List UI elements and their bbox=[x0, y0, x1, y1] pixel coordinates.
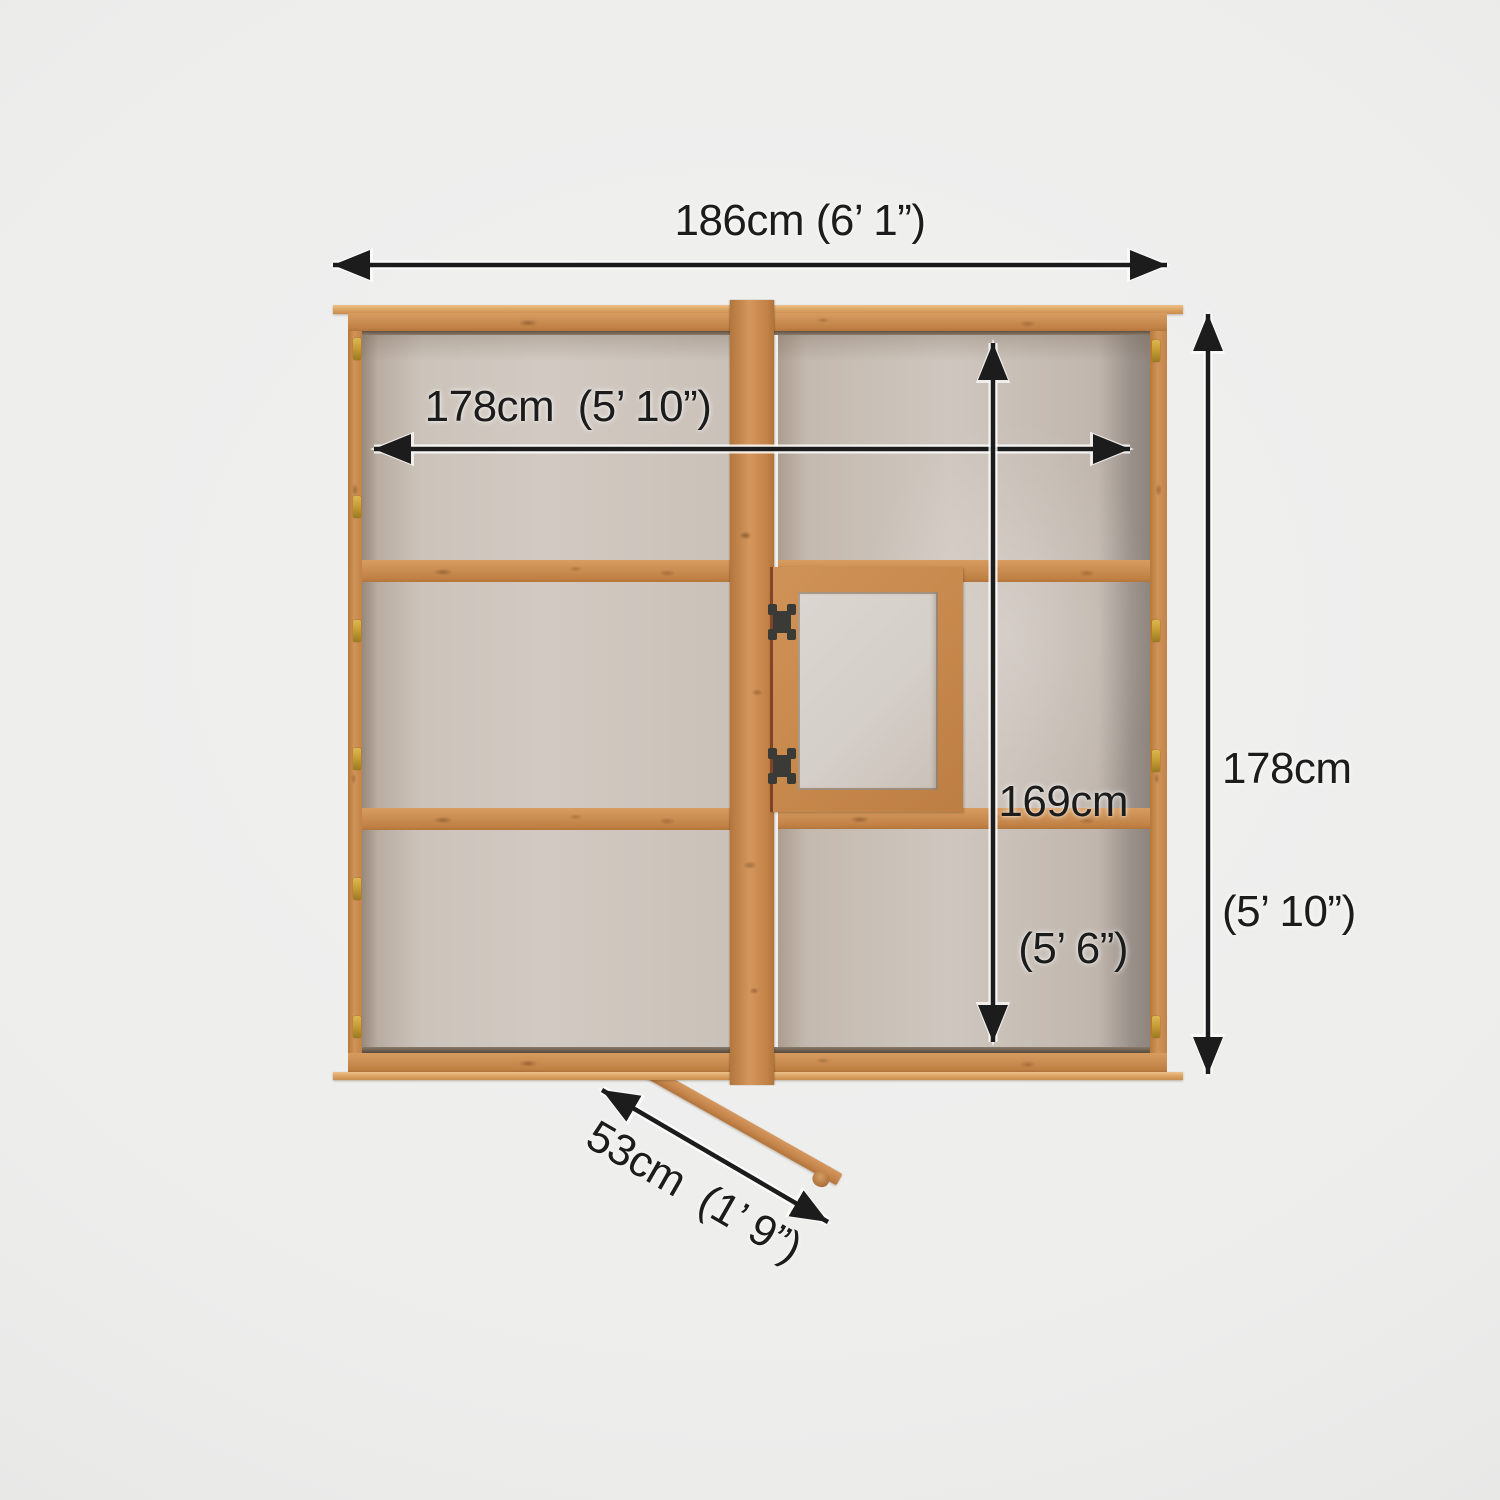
greenhouse-dimension-diagram: { "diagram": { "type": "product-dimensio… bbox=[0, 0, 1500, 1500]
dimension-label-internal-depth: 169cm (5’ 6”) bbox=[998, 678, 1128, 1023]
dimension-label-line: (5’ 6”) bbox=[998, 924, 1128, 973]
dimension-label-line: (5’ 10”) bbox=[1222, 888, 1356, 936]
dimension-label-line: 169cm bbox=[998, 777, 1128, 826]
dimension-label-line: 178cm bbox=[1222, 745, 1356, 793]
dimension-label-overall-depth: 178cm (5’ 10”) bbox=[1222, 650, 1356, 983]
dimension-label-overall-width: 186cm (6’ 1”) bbox=[674, 197, 925, 245]
dimension-label-internal-width: 178cm (5’ 10”) bbox=[425, 383, 712, 431]
